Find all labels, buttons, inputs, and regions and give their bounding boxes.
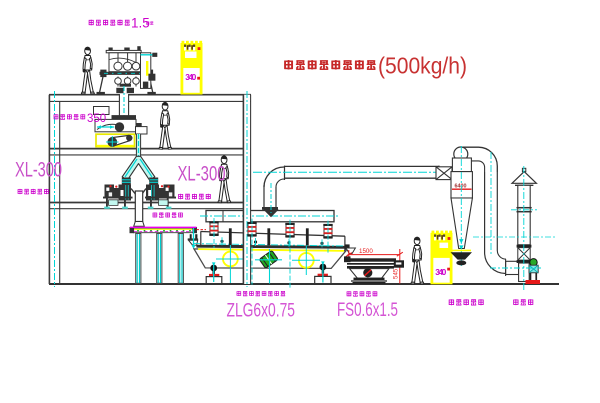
svg-text:340: 340 xyxy=(435,267,446,277)
svg-text:340: 340 xyxy=(185,72,196,82)
svg-text:ZLG6x0.75: ZLG6x0.75 xyxy=(227,300,296,322)
svg-text:545: 545 xyxy=(393,268,400,279)
svg-text:1500: 1500 xyxy=(359,248,373,255)
svg-text:FS0.6x1.5: FS0.6x1.5 xyxy=(337,299,398,321)
svg-text:350: 350 xyxy=(87,113,106,125)
svg-text:XL-300: XL-300 xyxy=(15,159,62,182)
svg-text:(500kg/h): (500kg/h) xyxy=(378,53,467,79)
svg-text:XL-300: XL-300 xyxy=(178,163,226,186)
